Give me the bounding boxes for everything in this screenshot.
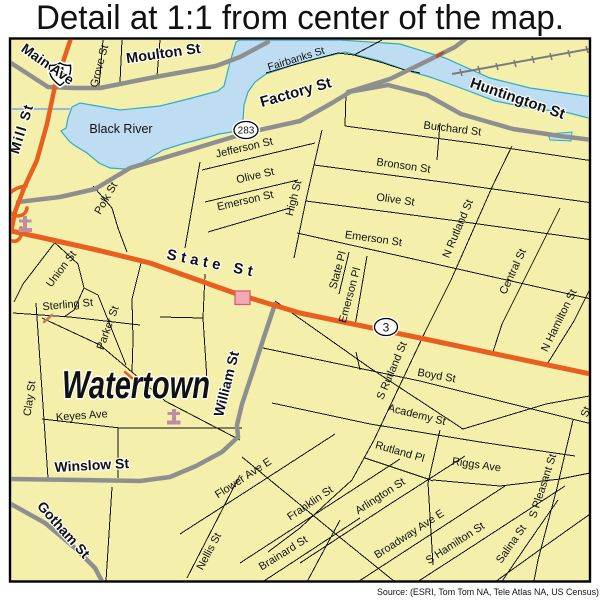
svg-text:3: 3 [383, 321, 390, 335]
svg-text:Source: (ESRI, Tom Tom NA, Tel: Source: (ESRI, Tom Tom NA, Tele Atlas NA… [377, 587, 599, 598]
svg-text:Detail at 1:1 from center of t: Detail at 1:1 from center of the map. [36, 0, 564, 37]
svg-text:283: 283 [238, 126, 255, 137]
svg-text:Black River: Black River [89, 122, 152, 136]
svg-text:Watertown: Watertown [62, 364, 210, 407]
